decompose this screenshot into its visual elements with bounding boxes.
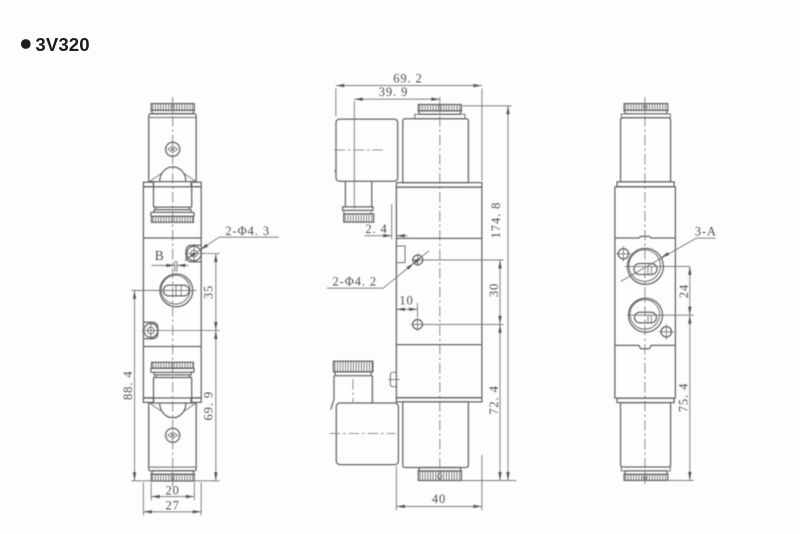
svg-text:174. 8: 174. 8 <box>489 202 503 239</box>
svg-text:2-Φ4. 3: 2-Φ4. 3 <box>225 224 270 238</box>
svg-text:3V320: 3V320 <box>35 34 89 55</box>
svg-text:2-Φ4. 2: 2-Φ4. 2 <box>332 274 377 288</box>
svg-text:24: 24 <box>677 284 691 298</box>
svg-text:40: 40 <box>432 492 446 506</box>
svg-text:30: 30 <box>487 283 501 297</box>
svg-text:35: 35 <box>202 285 216 299</box>
svg-text:72. 4: 72. 4 <box>487 385 501 415</box>
svg-text:B: B <box>155 248 164 263</box>
svg-text:10: 10 <box>399 294 413 308</box>
svg-text:3-A: 3-A <box>695 224 717 238</box>
svg-text:75. 4: 75. 4 <box>676 383 690 413</box>
svg-text:69. 2: 69. 2 <box>393 71 423 85</box>
svg-text:69. 9: 69. 9 <box>202 391 216 421</box>
svg-text:2. 4: 2. 4 <box>365 222 387 236</box>
svg-text:27: 27 <box>166 499 180 513</box>
svg-text:39. 9: 39. 9 <box>379 85 409 99</box>
svg-text:20: 20 <box>166 483 180 497</box>
svg-text:88. 4: 88. 4 <box>121 370 135 400</box>
